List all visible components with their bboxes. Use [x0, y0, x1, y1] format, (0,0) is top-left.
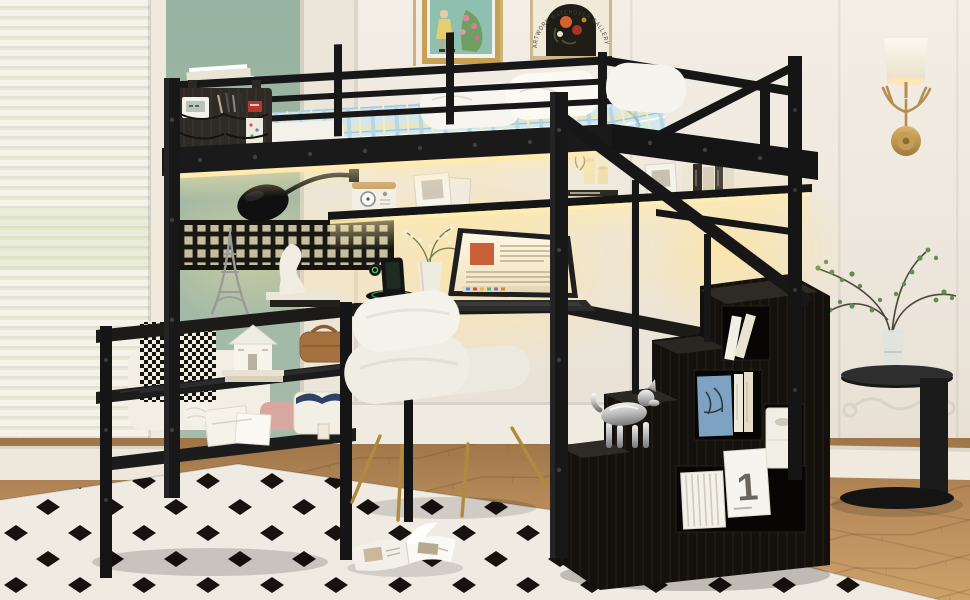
- striped-box: [681, 471, 726, 529]
- caddy-clock: [182, 97, 209, 118]
- gold-trim: [413, 0, 416, 66]
- painting-girl: [440, 10, 448, 18]
- scene-canvas: ARTWORK WATCHOVER GALLERY: [0, 0, 970, 600]
- book-cubby: [697, 372, 753, 437]
- table-support: [920, 378, 948, 500]
- post-right: [788, 56, 802, 480]
- corner-pillow: [604, 61, 687, 114]
- tier2-books: [222, 370, 284, 382]
- wall-groove: [956, 0, 959, 452]
- gold-trim: [500, 0, 503, 66]
- arch-poster: ARTWORK WATCHOVER GALLERY: [530, 0, 612, 60]
- screen-image: [470, 243, 494, 265]
- sconce-shade: [884, 38, 928, 80]
- box-number-label: 1: [735, 466, 759, 509]
- table-base: [840, 487, 954, 509]
- shelf-leg-left: [100, 326, 112, 578]
- caddy-card: [246, 118, 263, 144]
- caddy-red-item: [248, 101, 262, 112]
- numbered-storage-box: 1: [724, 449, 771, 518]
- shelf-leg-right: [340, 302, 352, 560]
- gold-framed-painting: [422, 0, 500, 64]
- room-photo: ARTWORK WATCHOVER GALLERY: [0, 0, 970, 600]
- yarn-ball: [184, 402, 208, 426]
